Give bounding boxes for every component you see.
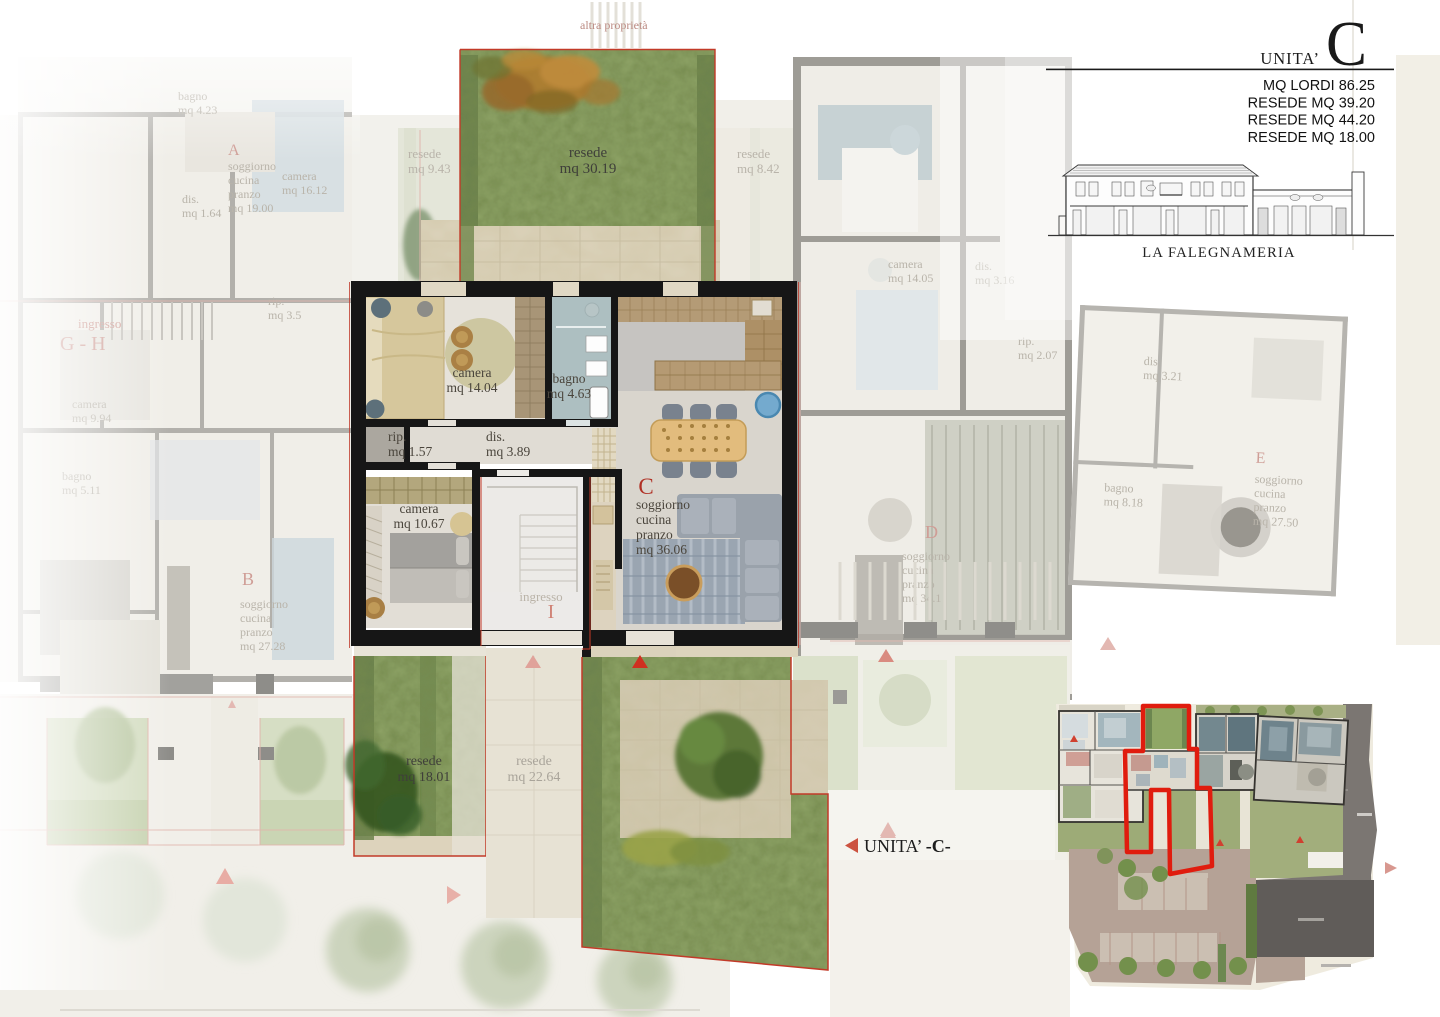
svg-text:MQ LORDI 86.25: MQ LORDI 86.25: [1263, 78, 1375, 94]
svg-text:mq 27.28: mq 27.28: [240, 639, 285, 653]
svg-text:pranzo: pranzo: [636, 527, 673, 542]
svg-text:pranzo: pranzo: [1253, 500, 1286, 515]
svg-text:resede: resede: [406, 754, 442, 769]
svg-text:camera: camera: [453, 365, 492, 380]
svg-text:UNITA’ -C-: UNITA’ -C-: [864, 836, 951, 856]
svg-text:soggiorno: soggiorno: [636, 497, 690, 512]
svg-text:RESEDE MQ 44.20: RESEDE MQ 44.20: [1248, 113, 1375, 129]
svg-text:LA FALEGNAMERIA: LA FALEGNAMERIA: [1142, 245, 1295, 261]
svg-text:C: C: [1326, 8, 1367, 79]
svg-text:camera: camera: [282, 169, 317, 183]
svg-text:soggiorno: soggiorno: [240, 597, 288, 611]
svg-text:mq 1.57: mq 1.57: [388, 444, 433, 459]
svg-text:mq 8.42: mq 8.42: [737, 161, 780, 176]
svg-text:mq 9.43: mq 9.43: [408, 161, 451, 176]
svg-text:mq 8.18: mq 8.18: [1103, 494, 1143, 510]
svg-text:bagno: bagno: [1104, 480, 1134, 495]
svg-text:mq 1.64: mq 1.64: [182, 206, 221, 220]
svg-text:pranzo: pranzo: [240, 625, 273, 639]
svg-text:mq 2.07: mq 2.07: [1018, 348, 1057, 362]
svg-text:RESEDE MQ 39.20: RESEDE MQ 39.20: [1248, 96, 1375, 112]
svg-text:resede: resede: [737, 146, 770, 161]
svg-text:camera: camera: [400, 501, 439, 516]
svg-text:cucina: cucina: [636, 512, 671, 527]
svg-text:mq 30.19: mq 30.19: [560, 161, 617, 177]
svg-text:mq 3.5: mq 3.5: [268, 308, 301, 322]
svg-text:mq 16.12: mq 16.12: [282, 183, 327, 197]
svg-text:soggiorno: soggiorno: [902, 549, 950, 563]
svg-text:mq 4.63: mq 4.63: [547, 386, 592, 401]
svg-text:D: D: [925, 522, 938, 542]
svg-text:mq 36.06: mq 36.06: [636, 542, 687, 557]
svg-text:dis.: dis.: [1144, 354, 1162, 369]
svg-text:dis.: dis.: [486, 429, 505, 444]
svg-text:mq 22.64: mq 22.64: [508, 770, 561, 785]
svg-text:UNITA’: UNITA’: [1260, 49, 1320, 68]
svg-text:C: C: [638, 474, 653, 499]
svg-text:E: E: [1255, 450, 1266, 467]
svg-text:altra proprietà: altra proprietà: [580, 18, 648, 32]
svg-text:mq 18.01: mq 18.01: [398, 770, 451, 785]
svg-text:ingresso: ingresso: [519, 589, 562, 604]
svg-text:mq 14.05: mq 14.05: [888, 271, 933, 285]
svg-text:soggiorno: soggiorno: [228, 159, 276, 173]
svg-text:mq 14.04: mq 14.04: [446, 380, 497, 395]
svg-text:B: B: [242, 569, 254, 589]
svg-text:mq 10.67: mq 10.67: [393, 516, 444, 531]
svg-text:bagno: bagno: [553, 371, 586, 386]
svg-text:resede: resede: [408, 146, 441, 161]
svg-text:cucina: cucina: [240, 611, 272, 625]
svg-text:cucina: cucina: [1254, 486, 1287, 501]
svg-text:I: I: [548, 601, 555, 623]
svg-text:camera: camera: [888, 257, 923, 271]
svg-text:dis.: dis.: [182, 192, 199, 206]
svg-text:pranzo: pranzo: [228, 187, 261, 201]
svg-text:mq 3.21: mq 3.21: [1143, 368, 1183, 384]
svg-text:resede: resede: [516, 754, 552, 769]
svg-text:mq 3.89: mq 3.89: [486, 444, 531, 459]
svg-text:mq 19.00: mq 19.00: [228, 201, 273, 215]
svg-text:RESEDE MQ 18.00: RESEDE MQ 18.00: [1248, 130, 1375, 146]
svg-text:resede: resede: [569, 145, 608, 161]
svg-text:mq 34.1: mq 34.1: [902, 591, 941, 605]
svg-text:cucina: cucina: [228, 173, 260, 187]
svg-text:mq 27.50: mq 27.50: [1253, 514, 1299, 530]
svg-text:rip.: rip.: [388, 429, 406, 444]
